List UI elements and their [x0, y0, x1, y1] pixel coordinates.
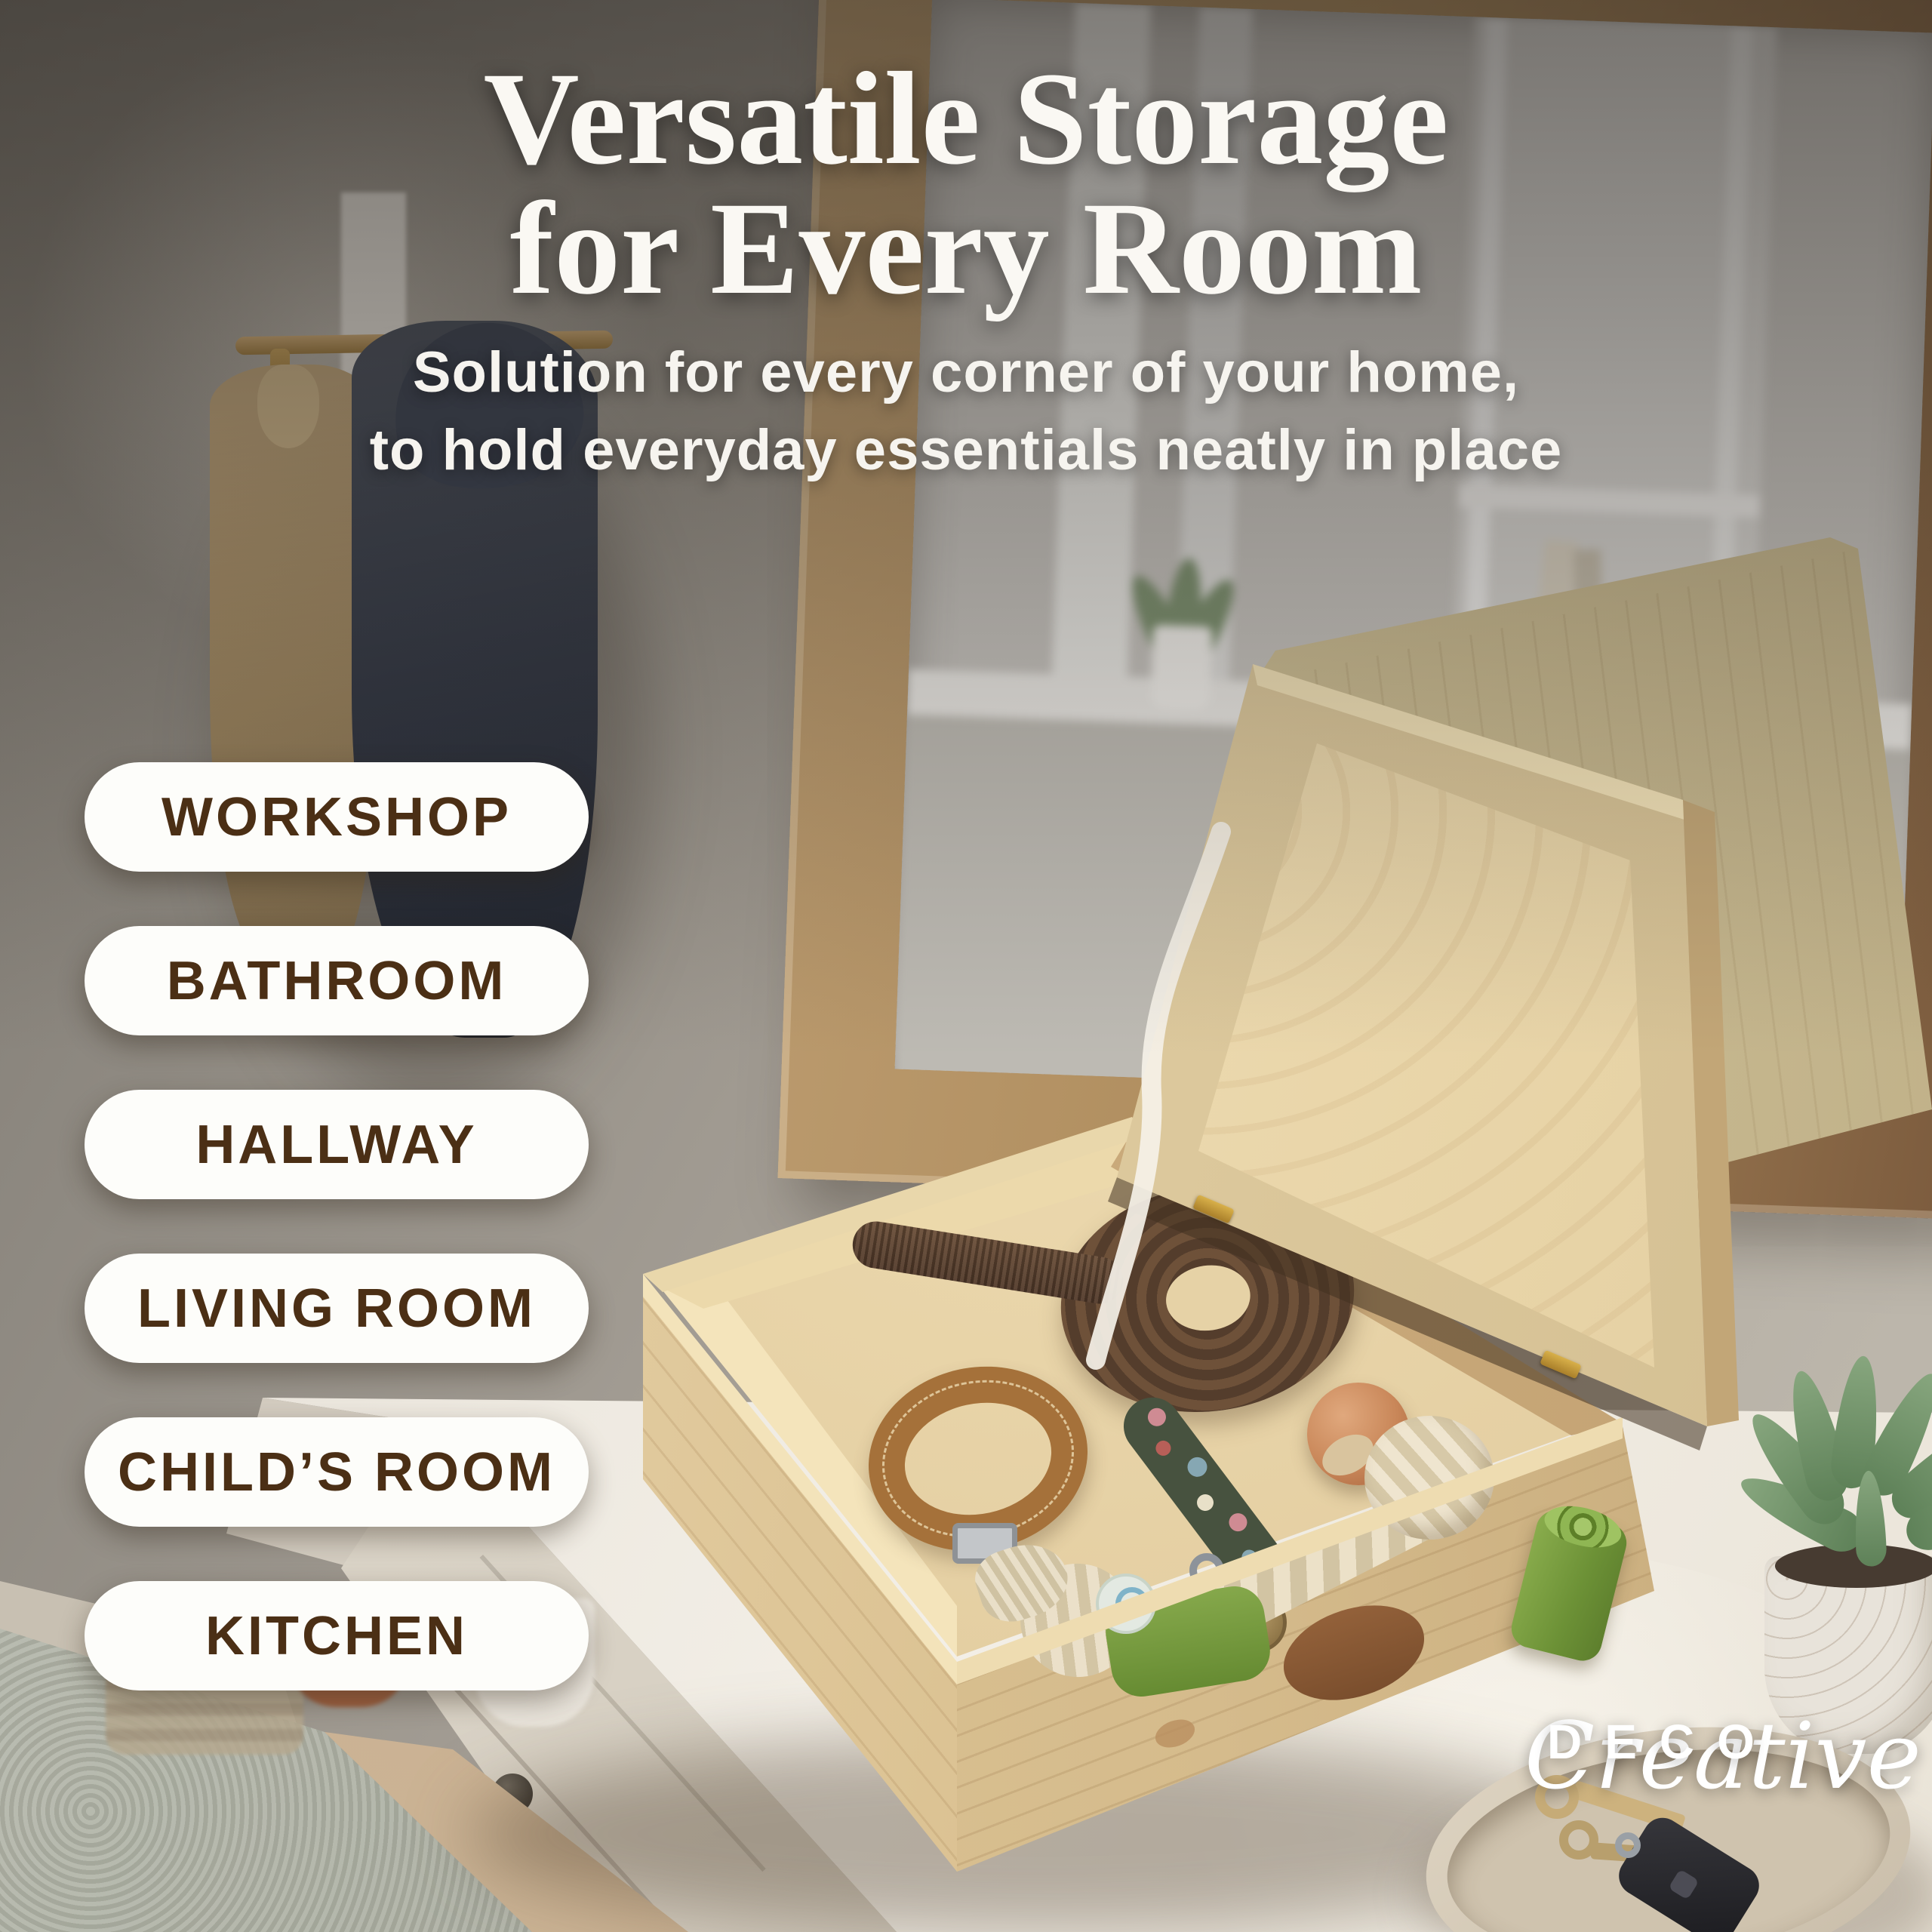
- room-label-childs-room: CHILD’S ROOM: [85, 1417, 589, 1527]
- subtitle-line-1: Solution for every corner of your home,: [0, 334, 1932, 411]
- title-line-1: Versatile Storage: [0, 54, 1932, 184]
- page-title: Versatile Storage for Every Room: [0, 54, 1932, 314]
- title-line-2: for Every Room: [0, 184, 1932, 314]
- room-label-living-room: LIVING ROOM: [85, 1254, 589, 1363]
- room-label-workshop: WORKSHOP: [85, 762, 589, 872]
- brand-logo-caps: DECO: [1524, 1718, 1777, 1766]
- brass-key-bow: [1559, 1820, 1598, 1860]
- succulent-soil: [1775, 1544, 1932, 1588]
- subtitle-line-2: to hold everyday essentials neatly in pl…: [0, 411, 1932, 489]
- key-ring: [1615, 1832, 1641, 1858]
- room-label-kitchen: KITCHEN: [85, 1581, 589, 1690]
- room-label-bathroom: BATHROOM: [85, 926, 589, 1035]
- page-subtitle: Solution for every corner of your home, …: [0, 334, 1932, 489]
- product-infographic: Versatile Storage for Every Room Solutio…: [0, 0, 1932, 1932]
- room-label-hallway: HALLWAY: [85, 1090, 589, 1199]
